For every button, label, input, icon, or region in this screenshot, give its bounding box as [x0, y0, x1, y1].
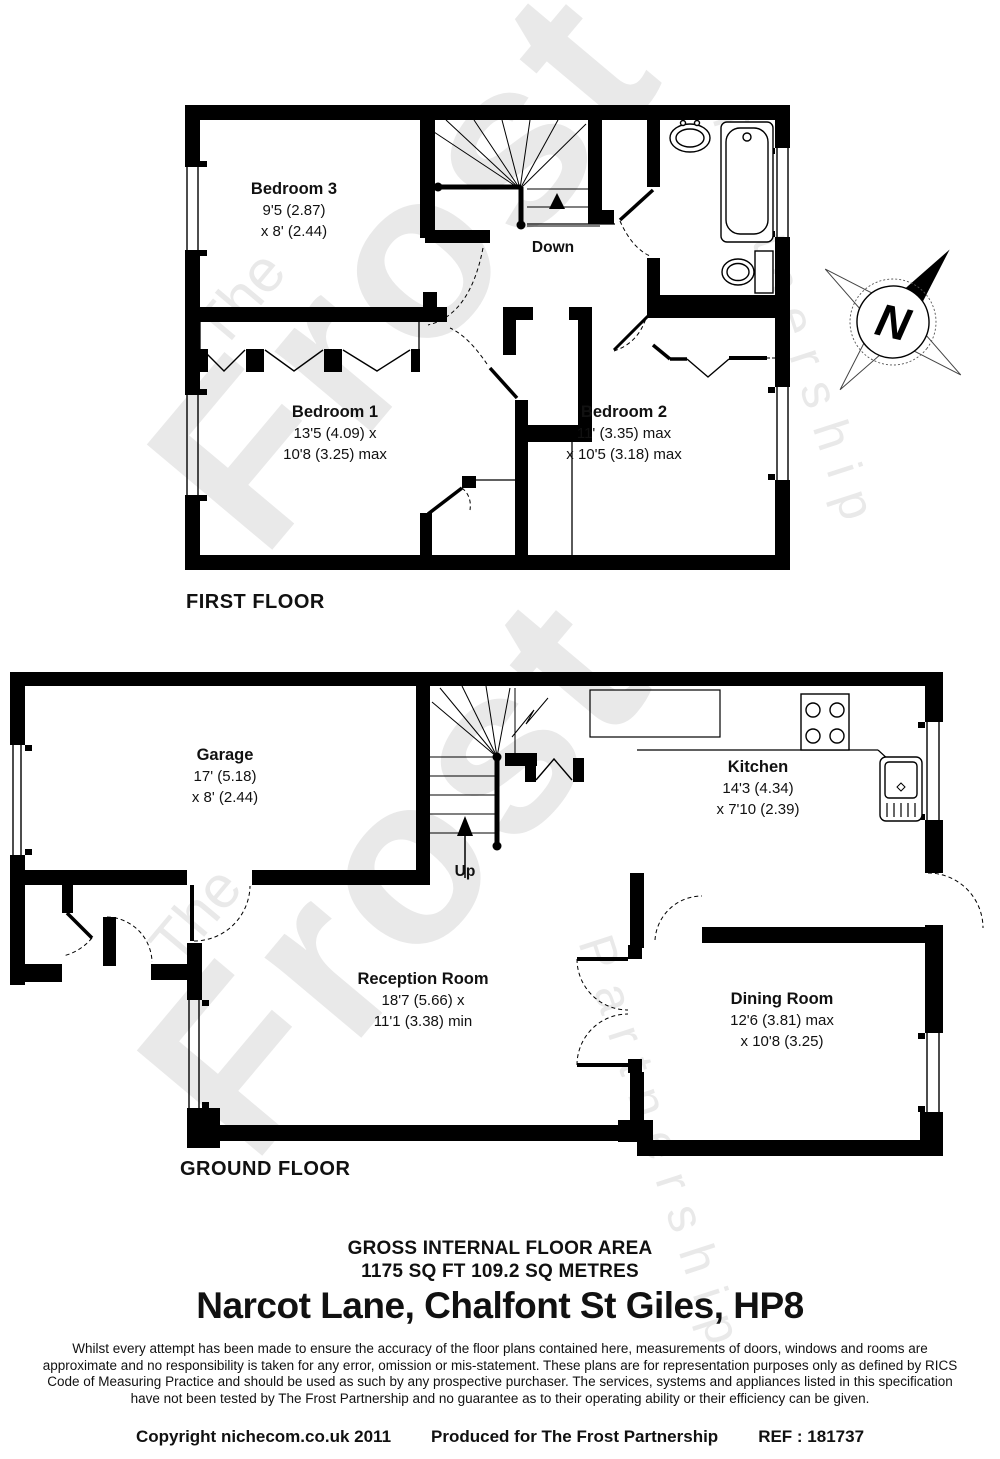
room-label-bedroom-1: Bedroom 1 13'5 (4.09) x 10'8 (3.25) max	[215, 402, 455, 465]
room-label-garage: Garage 17' (5.18) x 8' (2.44)	[125, 745, 325, 808]
floorplan-page: The Frost Partnership The Frost Partners…	[0, 0, 1000, 1459]
property-address: Narcot Lane, Chalfont St Giles, HP8	[0, 1285, 1000, 1327]
room-label-kitchen: Kitchen 14'3 (4.34) x 7'10 (2.39)	[658, 757, 858, 820]
stairs-down-label: Down	[513, 239, 593, 257]
room-dimension: x 7'10 (2.39)	[658, 799, 858, 820]
gross-area-title: GROSS INTERNAL FLOOR AREA	[0, 1238, 1000, 1260]
room-dimension: 11' (3.35) max	[504, 423, 744, 444]
room-name: Bedroom 2	[504, 402, 744, 423]
room-dimension: 13'5 (4.09) x	[215, 423, 455, 444]
room-dimension: x 10'8 (3.25)	[662, 1031, 902, 1052]
bathroom-fixtures	[670, 121, 773, 294]
reference-number: REF : 181737	[758, 1427, 864, 1447]
room-dimension: 10'8 (3.25) max	[215, 444, 455, 465]
ground-floor-title: GROUND FLOOR	[180, 1158, 350, 1181]
kitchen-sink-icon	[880, 757, 922, 821]
room-label-bedroom-2: Bedroom 2 11' (3.35) max x 10'5 (3.18) m…	[504, 402, 744, 465]
produced-for-text: Produced for The Frost Partnership	[431, 1427, 718, 1447]
first-floor-title: FIRST FLOOR	[186, 591, 325, 614]
room-label-dining-room: Dining Room 12'6 (3.81) max x 10'8 (3.25…	[662, 989, 902, 1052]
hob-icon	[801, 694, 849, 750]
stairs-up-label: Up	[425, 863, 505, 881]
room-dimension: 14'3 (4.34)	[658, 778, 858, 799]
disclaimer-text: Whilst every attempt has been made to en…	[40, 1341, 960, 1407]
room-dimension: x 10'5 (3.18) max	[504, 444, 744, 465]
room-dimension: 18'7 (5.66) x	[293, 990, 553, 1011]
room-label-reception-room: Reception Room 18'7 (5.66) x 11'1 (3.38)…	[293, 969, 553, 1032]
gross-area-value: 1175 SQ FT 109.2 SQ METRES	[0, 1261, 1000, 1283]
room-name: Garage	[125, 745, 325, 766]
room-name: Dining Room	[662, 989, 902, 1010]
bathtub-icon	[721, 122, 773, 242]
room-label-bedroom-3: Bedroom 3 9'5 (2.87) x 8' (2.44)	[184, 179, 404, 242]
room-dimension: x 8' (2.44)	[125, 787, 325, 808]
room-dimension: 12'6 (3.81) max	[662, 1010, 902, 1031]
room-name: Bedroom 3	[184, 179, 404, 200]
room-name: Kitchen	[658, 757, 858, 778]
copyright-text: Copyright nichecom.co.uk 2011	[136, 1427, 391, 1447]
room-dimension: 9'5 (2.87)	[184, 200, 404, 221]
room-dimension: 17' (5.18)	[125, 766, 325, 787]
copyright-line: Copyright nichecom.co.uk 2011 Produced f…	[0, 1427, 1000, 1447]
room-dimension: 11'1 (3.38) min	[293, 1011, 553, 1032]
room-name: Reception Room	[293, 969, 553, 990]
room-dimension: x 8' (2.44)	[184, 221, 404, 242]
room-name: Bedroom 1	[215, 402, 455, 423]
